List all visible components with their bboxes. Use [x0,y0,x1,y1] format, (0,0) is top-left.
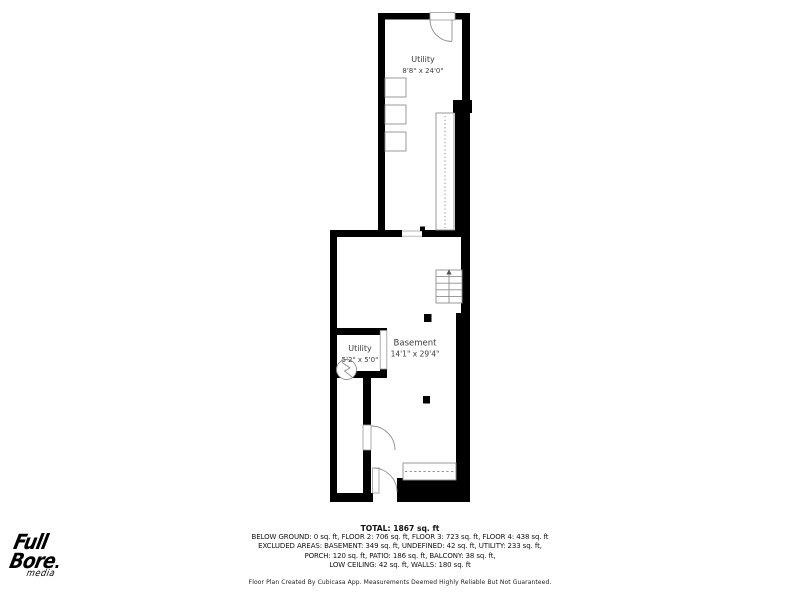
utility-room-opening [380,331,387,370]
summary-line: LOW CEILING: 42 sq. ft, WALLS: 180 sq. f… [0,561,800,570]
summary-total: TOTAL: 1867 sq. ft [0,524,800,533]
room-name: Basement [391,337,440,349]
interior-door-icon [363,425,395,450]
support-column-icon [424,314,432,322]
company-logo: Full Bore media [6,533,65,578]
room-name: Utility [342,343,379,355]
room-name: Utility [402,54,443,66]
entry-door-icon [430,13,455,42]
room-dimensions: 14'1" x 29'4" [391,350,440,361]
room-label-utility-upper: Utility 8'8" x 24'0" [402,54,443,76]
disclaimer-text: Floor Plan Created By Cubicasa App. Meas… [0,579,800,586]
staircase-upper-icon [436,113,454,230]
staircase-bottom-icon [403,463,456,480]
floor-plan-page: Utility 8'8" x 24'0" Basement 14'1" x 29… [0,0,800,600]
summary-line: PORCH: 120 sq. ft, PATIO: 186 sq. ft, BA… [0,552,800,561]
logo-word-bore: Bore [8,552,61,571]
room-label-utility-small: Utility 5'2" x 5'0" [342,343,379,365]
area-summary: TOTAL: 1867 sq. ft BELOW GROUND: 0 sq. f… [0,524,800,586]
exterior-door-icon [373,468,398,493]
passage-opening [402,227,425,238]
summary-line: BELOW GROUND: 0 sq. ft, FLOOR 2: 706 sq.… [0,533,800,542]
room-dimensions: 8'8" x 24'0" [402,66,443,76]
support-column-icon [423,396,430,404]
appliance-icons [385,78,406,151]
summary-line: EXCLUDED AREAS: BASEMENT: 349 sq. ft, UN… [0,542,800,551]
floor-plan-drawing [0,0,800,600]
room-label-basement: Basement 14'1" x 29'4" [391,337,440,360]
staircase-basement-icon [436,270,462,304]
room-dimensions: 5'2" x 5'0" [342,355,379,365]
